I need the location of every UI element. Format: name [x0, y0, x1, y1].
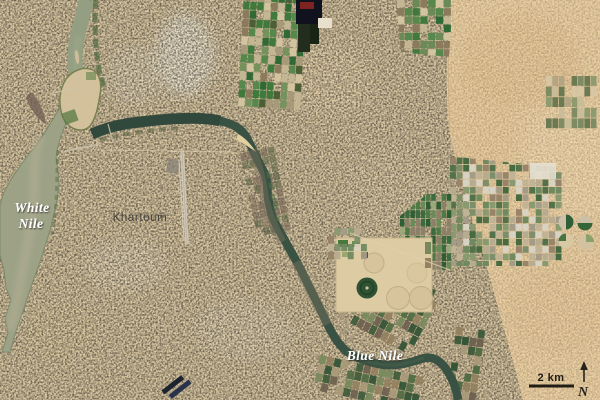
field-cell: [496, 187, 502, 194]
field-cell: [516, 246, 522, 253]
field-cell: [523, 239, 529, 246]
field-cell: [529, 180, 535, 187]
field-cell: [572, 118, 578, 128]
field-cell: [426, 210, 431, 218]
field-cell: [472, 365, 480, 374]
field-cell: [468, 346, 476, 355]
field-cell: [413, 41, 420, 48]
field-cell: [584, 118, 590, 128]
field-cell: [450, 172, 456, 179]
field-cell: [291, 30, 298, 38]
field-cell: [463, 209, 469, 216]
field-cell: [542, 187, 548, 194]
field-cell: [285, 0, 292, 3]
field-cell: [282, 65, 289, 73]
field-cell: [476, 217, 482, 224]
field-cell: [463, 382, 471, 391]
field-cell: [294, 101, 301, 109]
field-cell: [503, 224, 509, 231]
field-cell: [559, 108, 565, 118]
field-cell: [276, 38, 283, 46]
field-cell: [457, 180, 463, 187]
field-cell: [413, 0, 420, 7]
field-cell: [536, 180, 542, 187]
field-cell: [457, 209, 463, 216]
field-cell: [483, 209, 489, 216]
field-cell: [476, 172, 482, 179]
field-cell: [584, 108, 590, 118]
field-cell: [290, 48, 297, 56]
field-cell: [295, 83, 302, 91]
field-cell: [549, 246, 555, 253]
field-cell: [243, 10, 250, 18]
field-cell: [536, 239, 542, 246]
field-cell: [421, 202, 426, 210]
field-cell: [413, 16, 420, 23]
field-cell: [584, 76, 590, 86]
field-cell: [457, 202, 463, 209]
field-cell: [256, 20, 263, 28]
field-cell: [470, 239, 476, 246]
field-cell: [483, 172, 489, 179]
field-cell: [246, 72, 253, 80]
field-cell: [591, 108, 597, 118]
field-cell: [572, 97, 578, 107]
field-cell: [509, 231, 515, 238]
field-cell: [421, 219, 426, 227]
field-cell: [296, 57, 303, 65]
field-cell: [477, 330, 485, 339]
field-cell: [529, 224, 535, 231]
field-cell: [444, 25, 451, 32]
field-cell: [490, 209, 496, 216]
blue-nile-label: Blue Nile: [346, 348, 403, 363]
field-cell: [516, 209, 522, 216]
field-cell: [523, 180, 529, 187]
field-cell: [529, 239, 535, 246]
field-cell: [269, 38, 276, 46]
field-cell: [463, 194, 469, 201]
field-cell: [405, 33, 412, 40]
field-cell: [503, 187, 509, 194]
field-cell: [546, 76, 552, 86]
field-cell: [490, 165, 496, 172]
field-cell: [240, 63, 247, 71]
field-cell: [542, 231, 548, 238]
field-cell: [242, 28, 249, 36]
field-cell: [442, 202, 447, 210]
field-cell: [410, 219, 415, 227]
field-cell: [509, 172, 515, 179]
field-cell: [241, 45, 248, 53]
field-cell: [496, 180, 502, 187]
field-cell: [476, 180, 482, 187]
field-cell: [546, 87, 552, 97]
field-cell: [460, 345, 468, 354]
field-cell: [549, 202, 555, 209]
field-cell: [450, 165, 456, 172]
field-cell: [266, 91, 273, 99]
field-cell: [470, 187, 476, 194]
field-cell: [253, 81, 260, 89]
field-cell: [457, 217, 463, 224]
field-cell: [447, 227, 452, 235]
field-cell: [536, 194, 542, 201]
field-cell: [542, 194, 548, 201]
field-cell: [490, 239, 496, 246]
field-cell: [254, 55, 261, 63]
field-cell: [523, 209, 529, 216]
field-cell: [405, 8, 412, 15]
field-cell: [328, 236, 334, 243]
field-cell: [536, 217, 542, 224]
field-cell: [529, 217, 535, 224]
field-cell: [536, 254, 542, 261]
field-cell: [436, 33, 443, 40]
field-cell: [249, 19, 256, 27]
field-cell: [447, 245, 452, 253]
field-cell: [542, 246, 548, 253]
field-cell: [354, 228, 360, 235]
field-cell: [516, 187, 522, 194]
field-cell: [463, 246, 469, 253]
field-cell: [542, 254, 548, 261]
field-cell: [470, 254, 476, 261]
field-cell: [284, 30, 291, 38]
field-cell: [413, 8, 420, 15]
field-cell: [245, 90, 252, 98]
field-cell: [503, 217, 509, 224]
field-cell: [261, 55, 268, 63]
field-cell: [242, 19, 249, 27]
field-cell: [463, 202, 469, 209]
field-cell: [549, 187, 555, 194]
white-nile-label-line2: Nile: [18, 216, 44, 231]
field-cell: [436, 0, 443, 7]
field-cell: [420, 8, 427, 15]
field-cell: [529, 246, 535, 253]
field-cell: [421, 210, 426, 218]
field-cell: [578, 97, 584, 107]
field-cell: [457, 172, 463, 179]
satellite-image: White Nile Khartoum Blue Nile 2 km N: [0, 0, 600, 400]
field-cell: [447, 236, 452, 244]
field-cell: [556, 187, 562, 194]
field-cell: [428, 0, 435, 7]
field-cell: [490, 246, 496, 253]
field-cell: [523, 224, 529, 231]
field-cell: [483, 217, 489, 224]
field-cell: [245, 98, 252, 106]
field-cell: [444, 8, 451, 15]
field-cell: [490, 224, 496, 231]
field-cell: [470, 246, 476, 253]
field-cell: [436, 41, 443, 48]
field-cell: [496, 202, 502, 209]
field-cell: [238, 89, 245, 97]
field-cell: [416, 202, 421, 210]
field-cell: [241, 36, 248, 44]
field-cell: [240, 54, 247, 62]
field-cell: [431, 219, 436, 227]
field-cell: [250, 11, 257, 19]
field-cell: [565, 118, 571, 128]
field-cell: [243, 1, 250, 9]
field-cell: [503, 209, 509, 216]
field-cell: [410, 210, 415, 218]
field-cell: [280, 100, 287, 108]
field-cell: [496, 224, 502, 231]
field-cell: [542, 224, 548, 231]
field-cell: [253, 72, 260, 80]
field-cell: [248, 46, 255, 54]
field-cell: [463, 239, 469, 246]
field-cell: [552, 76, 558, 86]
field-cell: [490, 254, 496, 261]
field-cell: [516, 254, 522, 261]
field-cell: [444, 0, 451, 7]
field-cell: [287, 92, 294, 100]
field-cell: [476, 187, 482, 194]
field-cell: [421, 227, 426, 235]
field-cell: [262, 38, 269, 46]
fields-top-center: [238, 0, 306, 109]
field-cell: [457, 246, 463, 253]
field-cell: [509, 224, 515, 231]
field-cell: [483, 202, 489, 209]
greenhouse-cluster: [530, 163, 556, 179]
field-cell: [335, 252, 341, 259]
field-cell: [591, 118, 597, 128]
field-cell: [436, 245, 441, 253]
field-cell: [275, 65, 282, 73]
field-cell: [289, 57, 296, 65]
field-cell: [503, 172, 509, 179]
field-cell: [447, 210, 452, 218]
field-cell: [273, 91, 280, 99]
field-cell: [450, 187, 456, 194]
field-cell: [400, 227, 405, 235]
field-cell: [470, 180, 476, 187]
field-cell: [476, 209, 482, 216]
field-cell: [416, 210, 421, 218]
field-cell: [556, 202, 562, 209]
field-cell: [496, 239, 502, 246]
field-cell: [436, 253, 441, 261]
field-cell: [328, 244, 334, 251]
field-cell: [463, 231, 469, 238]
field-cell: [287, 101, 294, 109]
field-cell: [476, 194, 482, 201]
field-cell: [463, 157, 469, 164]
field-cell: [284, 21, 291, 29]
field-cell: [285, 12, 292, 20]
field-cell: [523, 165, 529, 172]
field-cell: [288, 83, 295, 91]
field-cell: [529, 202, 535, 209]
field-cell: [463, 217, 469, 224]
field-cell: [255, 37, 262, 45]
field-cell: [496, 172, 502, 179]
field-cell: [469, 392, 477, 400]
field-cell: [572, 76, 578, 86]
field-cell: [542, 209, 548, 216]
field-cell: [509, 254, 515, 261]
field-cell: [578, 87, 584, 97]
field-cell: [536, 231, 542, 238]
field-cell: [263, 20, 270, 28]
field-cell: [476, 231, 482, 238]
field-cell: [442, 210, 447, 218]
field-cell: [249, 28, 256, 36]
field-cell: [447, 219, 452, 227]
field-cell: [509, 165, 515, 172]
field-cell: [239, 72, 246, 80]
field-cell: [516, 180, 522, 187]
field-cell: [442, 253, 447, 261]
field-cell: [278, 12, 285, 20]
field-cell: [281, 74, 288, 82]
field-cell: [400, 219, 405, 227]
field-cell: [335, 228, 341, 235]
field-cell: [413, 25, 420, 32]
field-cell: [549, 180, 555, 187]
field-cell: [559, 76, 565, 86]
field-cell: [450, 157, 456, 164]
field-cell: [266, 99, 273, 107]
field-cell: [275, 56, 282, 64]
field-cell: [542, 180, 548, 187]
field-cell: [556, 246, 562, 253]
field-cell: [470, 224, 476, 231]
field-cell: [463, 165, 469, 172]
field-cell: [265, 0, 272, 2]
field-cell: [536, 246, 542, 253]
field-cell: [442, 227, 447, 235]
field-cell: [420, 0, 427, 7]
field-cell: [471, 374, 479, 383]
field-cell: [290, 39, 297, 47]
field-cell: [294, 92, 301, 100]
field-cell: [536, 224, 542, 231]
field-cell: [470, 202, 476, 209]
field-cell: [280, 91, 287, 99]
field-cell: [546, 118, 552, 128]
field-cell: [470, 209, 476, 216]
field-cell: [565, 97, 571, 107]
field-cell: [496, 194, 502, 201]
field-cell: [354, 244, 360, 251]
field-cell: [523, 246, 529, 253]
field-cell: [271, 12, 278, 20]
field-cell: [269, 47, 276, 55]
field-cell: [549, 254, 555, 261]
field-cell: [503, 180, 509, 187]
field-cell: [503, 202, 509, 209]
field-cell: [536, 187, 542, 194]
field-cell: [252, 99, 259, 107]
field-cell: [542, 239, 548, 246]
field-cell: [262, 46, 269, 54]
field-cell: [546, 97, 552, 107]
field-cell: [442, 245, 447, 253]
field-cell: [397, 8, 404, 15]
satellite-map-svg: White Nile Khartoum Blue Nile 2 km N: [0, 0, 600, 400]
scale-bar-line: [529, 385, 574, 388]
field-cell: [463, 187, 469, 194]
field-cell: [436, 236, 441, 244]
field-cell: [490, 194, 496, 201]
field-cell: [405, 219, 410, 227]
field-cell: [436, 49, 443, 56]
field-cell: [542, 202, 548, 209]
field-cell: [490, 202, 496, 209]
field-cell: [260, 73, 267, 81]
field-cell: [470, 172, 476, 179]
field-cell: [416, 227, 421, 235]
field-cell: [277, 21, 284, 29]
field-cell: [416, 219, 421, 227]
field-cell: [483, 180, 489, 187]
field-cell: [476, 239, 482, 246]
field-cell: [247, 63, 254, 71]
field-cell: [490, 172, 496, 179]
field-cell: [420, 25, 427, 32]
field-cell: [405, 227, 410, 235]
field-cell: [516, 239, 522, 246]
field-cell: [426, 219, 431, 227]
field-cell: [278, 3, 285, 11]
field-cell: [529, 187, 535, 194]
field-cell: [457, 157, 463, 164]
field-cell: [542, 217, 548, 224]
field-cell: [257, 2, 264, 10]
field-cell: [259, 99, 266, 107]
field-cell: [483, 187, 489, 194]
field-cell: [470, 383, 478, 392]
field-cell: [274, 73, 281, 81]
field-cell: [268, 56, 275, 64]
north-arrow-label: N: [577, 385, 589, 400]
field-cell: [361, 244, 367, 251]
field-cell: [476, 339, 484, 348]
field-cell: [463, 224, 469, 231]
field-cell: [552, 97, 558, 107]
field-cell: [447, 202, 452, 210]
field-cell: [264, 2, 271, 10]
field-cell: [503, 246, 509, 253]
field-cell: [572, 87, 578, 97]
field-cell: [248, 37, 255, 45]
field-cell: [503, 254, 509, 261]
field-cell: [457, 224, 463, 231]
field-cell: [552, 87, 558, 97]
field-cell: [431, 202, 436, 210]
field-cell: [572, 108, 578, 118]
field-cell: [516, 194, 522, 201]
field-cell: [442, 193, 447, 201]
field-cell: [476, 246, 482, 253]
scale-bar-label: 2 km: [537, 372, 564, 384]
field-cell: [428, 8, 435, 15]
field-cell: [447, 253, 452, 261]
field-cell: [428, 41, 435, 48]
field-cell: [405, 41, 412, 48]
field-cell: [361, 252, 367, 259]
field-cell: [578, 118, 584, 128]
field-cell: [420, 16, 427, 23]
field-cell: [463, 254, 469, 261]
